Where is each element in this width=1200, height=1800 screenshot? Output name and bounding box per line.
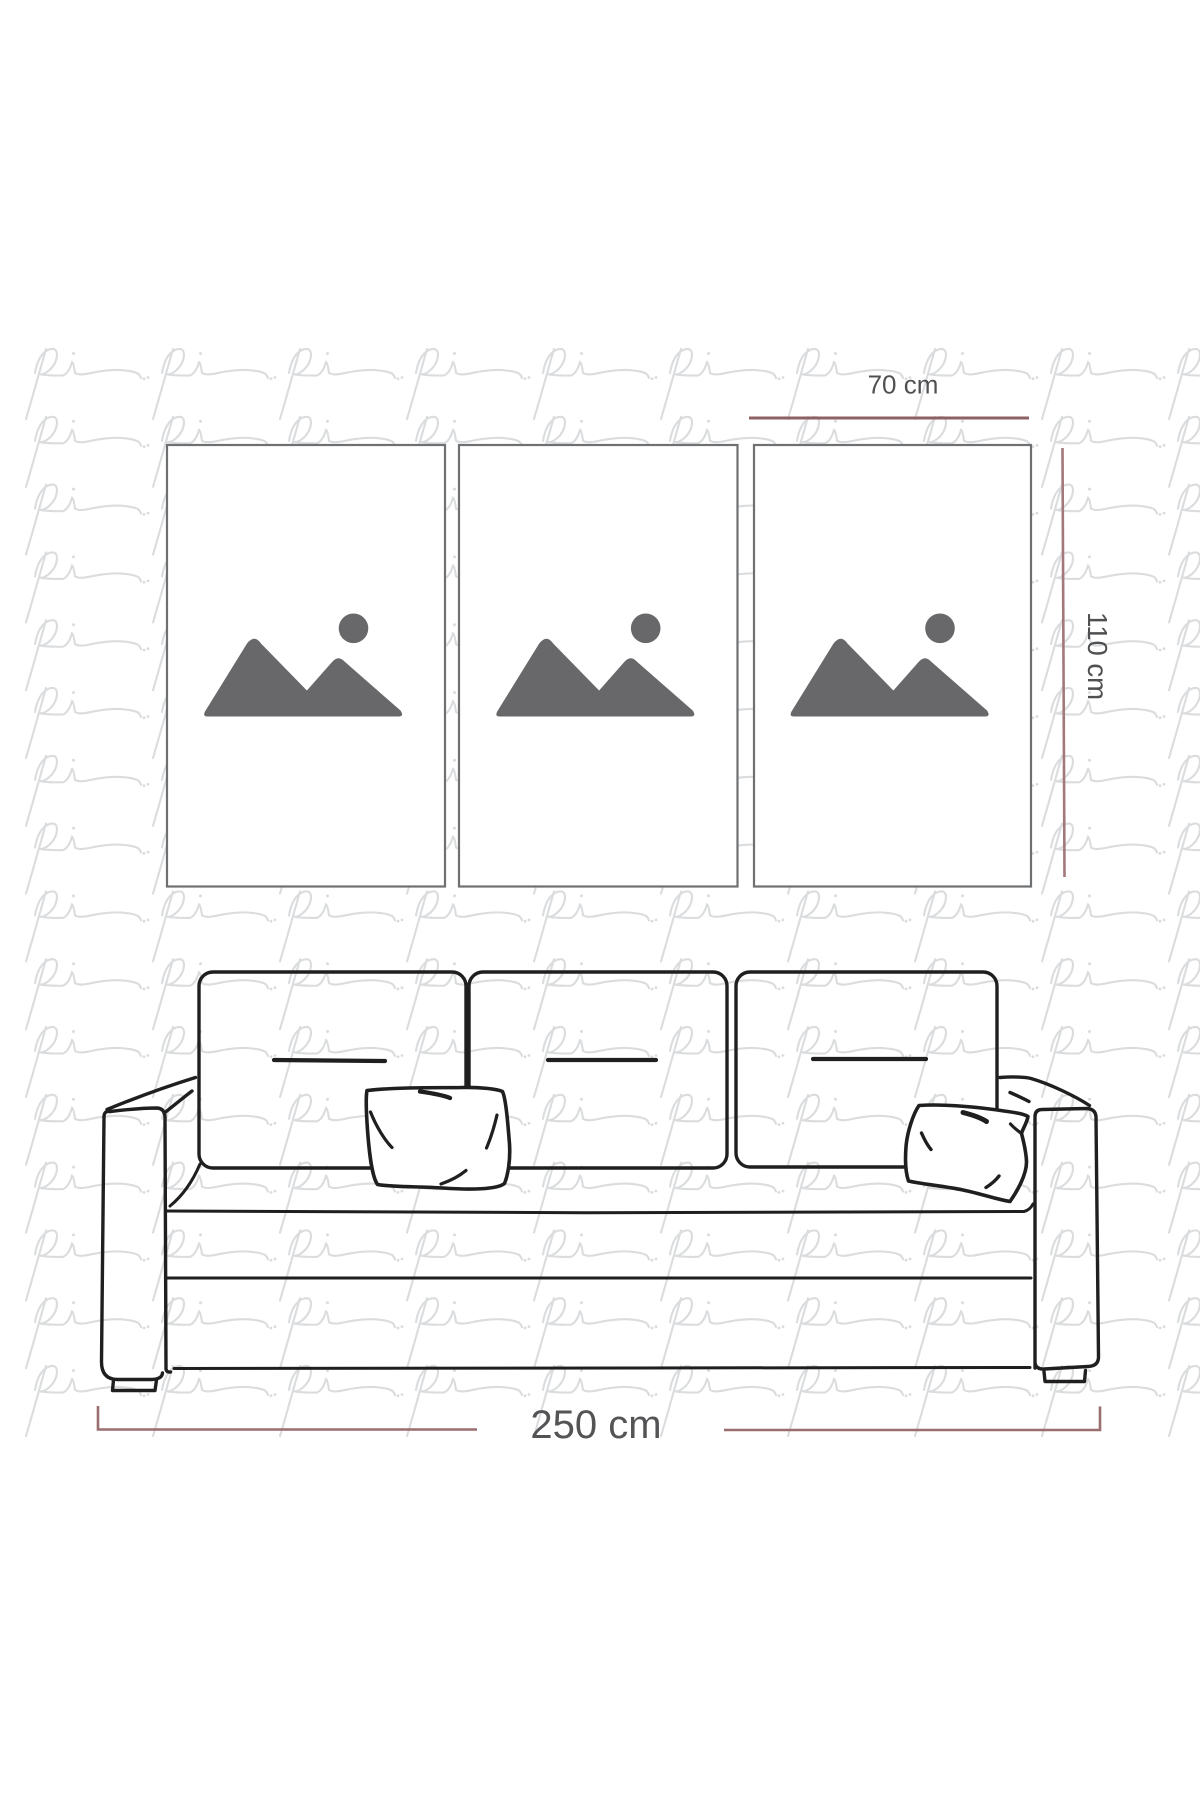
svg-text:110 cm: 110 cm xyxy=(1082,612,1113,700)
svg-text:70 cm: 70 cm xyxy=(868,370,939,400)
svg-text:250 cm: 250 cm xyxy=(530,1403,661,1447)
